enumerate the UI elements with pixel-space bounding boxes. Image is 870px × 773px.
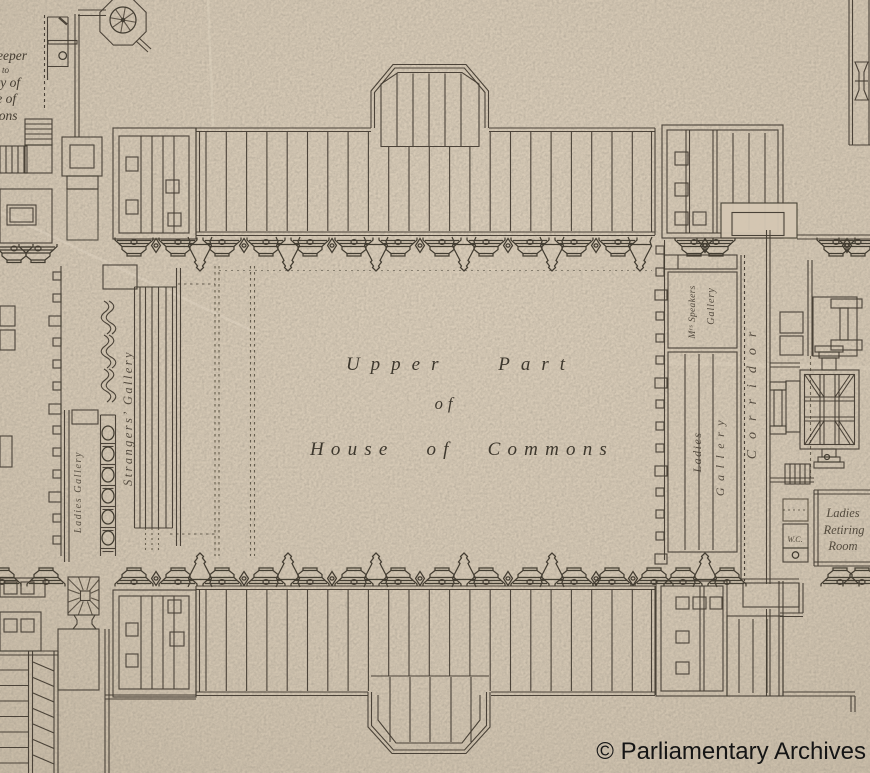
svg-text:Room: Room [827, 539, 857, 553]
svg-text:mons: mons [0, 108, 18, 123]
svg-text:Corridor: Corridor [745, 321, 760, 460]
svg-text:to: to [2, 65, 10, 75]
svg-text:Strangers’ Gallery: Strangers’ Gallery [121, 350, 135, 486]
svg-text:W.C.: W.C. [787, 535, 802, 544]
svg-text:© Parliamentary Archives: © Parliamentary Archives [596, 738, 866, 765]
svg-text:ery of: ery of [0, 75, 22, 90]
svg-text:Gallery: Gallery [706, 287, 717, 325]
svg-text:keeper: keeper [0, 48, 28, 63]
svg-text:Ladies: Ladies [690, 431, 704, 473]
svg-text:Gallery: Gallery [713, 414, 727, 496]
svg-text:se of: se of [0, 91, 18, 106]
svg-text:Upper Part: Upper Part [346, 354, 576, 375]
svg-text:of: of [435, 394, 458, 413]
svg-text:Ladies: Ladies [825, 506, 859, 520]
svg-text:House of Commons: House of Commons [309, 439, 614, 460]
svg-text:Retiring: Retiring [823, 523, 865, 537]
svg-text:Mrs Speakers: Mrs Speakers [688, 285, 699, 339]
svg-text:Ladies Gallery: Ladies Gallery [73, 451, 84, 534]
